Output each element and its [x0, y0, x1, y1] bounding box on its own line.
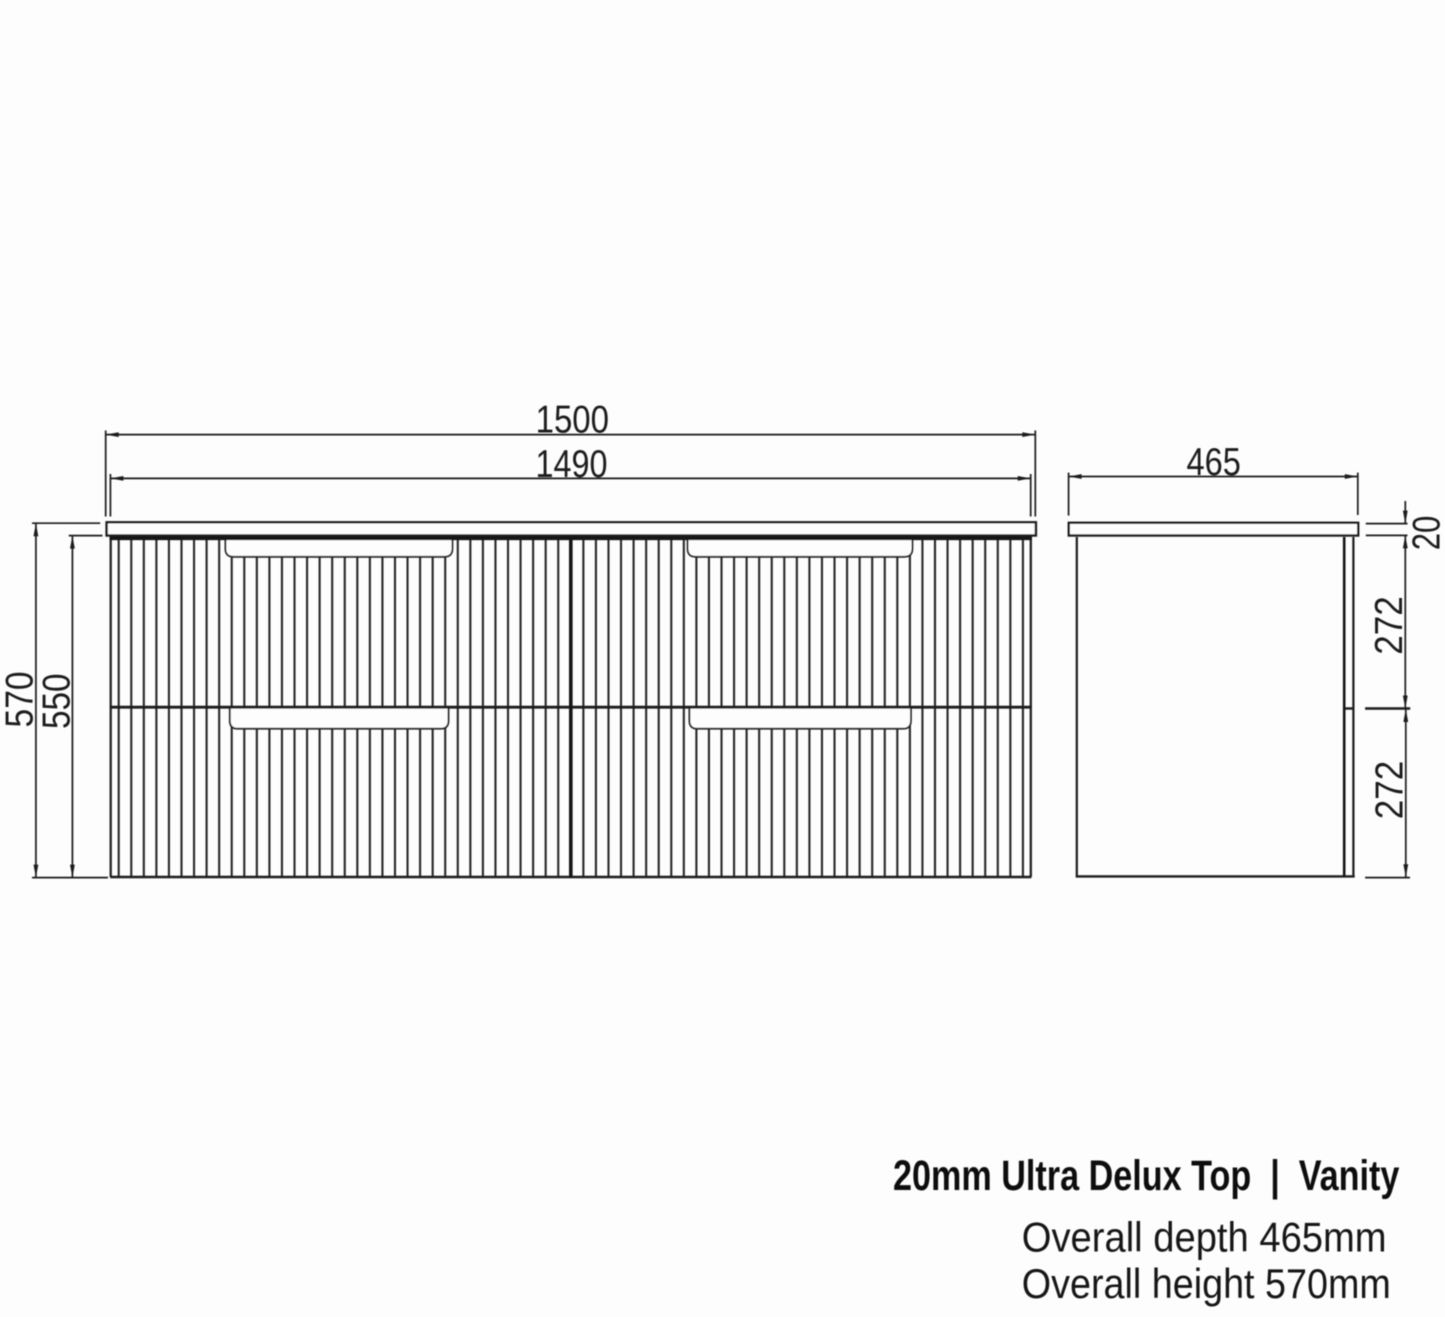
- svg-text:1490: 1490: [536, 443, 608, 486]
- svg-text:1500: 1500: [536, 399, 609, 442]
- svg-text:272: 272: [1369, 761, 1412, 819]
- svg-text:465: 465: [1187, 441, 1241, 484]
- svg-text:20mm Ultra Delux Top | Vanit: 20mm Ultra Delux Top | Vanity: [893, 1153, 1400, 1200]
- svg-text:Overall height 570mm: Overall height 570mm: [1022, 1260, 1391, 1307]
- svg-text:Overall depth 465mm: Overall depth 465mm: [1022, 1214, 1387, 1261]
- svg-text:272: 272: [1368, 596, 1411, 654]
- svg-text:20: 20: [1405, 516, 1445, 551]
- svg-text:550: 550: [36, 673, 79, 729]
